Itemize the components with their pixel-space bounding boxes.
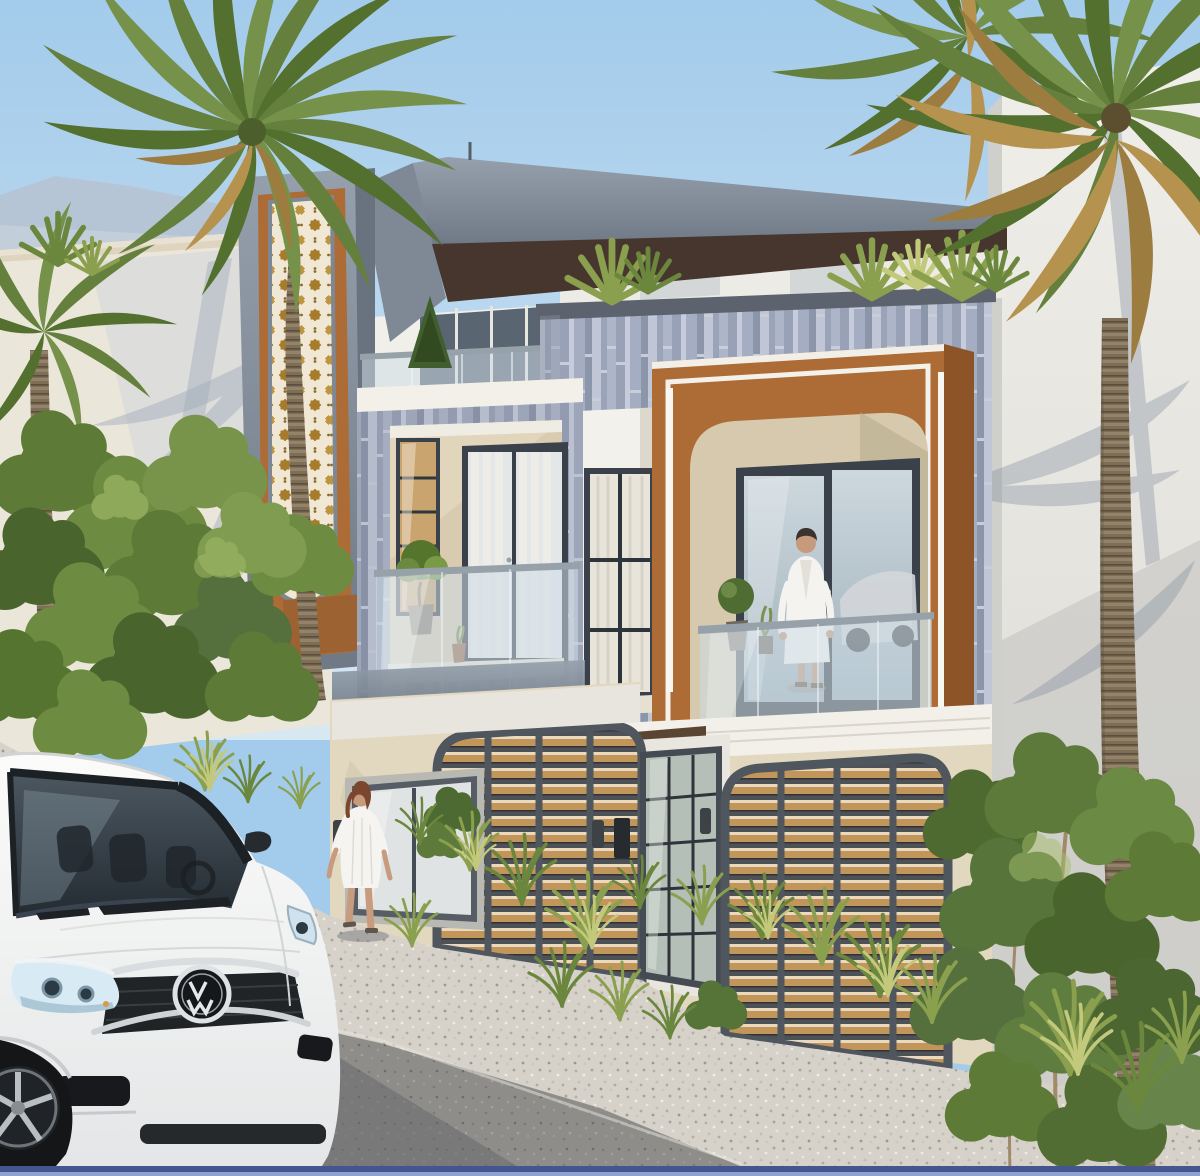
architectural-render	[0, 0, 1200, 1176]
vehicle-van	[0, 753, 340, 1166]
door-handle	[507, 558, 512, 563]
tower-brown-base	[283, 594, 365, 656]
fog-lamp-right	[296, 1034, 333, 1062]
side-mirror	[244, 831, 271, 852]
intercom-panel	[614, 818, 630, 858]
led-light-strip-right	[938, 372, 944, 724]
lower-intake	[140, 1124, 326, 1144]
led-light-strip-left	[666, 388, 673, 692]
vw-badge	[175, 967, 229, 1021]
right-shrub-bed	[910, 732, 1200, 1176]
bottom-edge-strip	[0, 1166, 1200, 1176]
scene-canvas	[0, 0, 1200, 1176]
headlight-left	[11, 960, 119, 1013]
